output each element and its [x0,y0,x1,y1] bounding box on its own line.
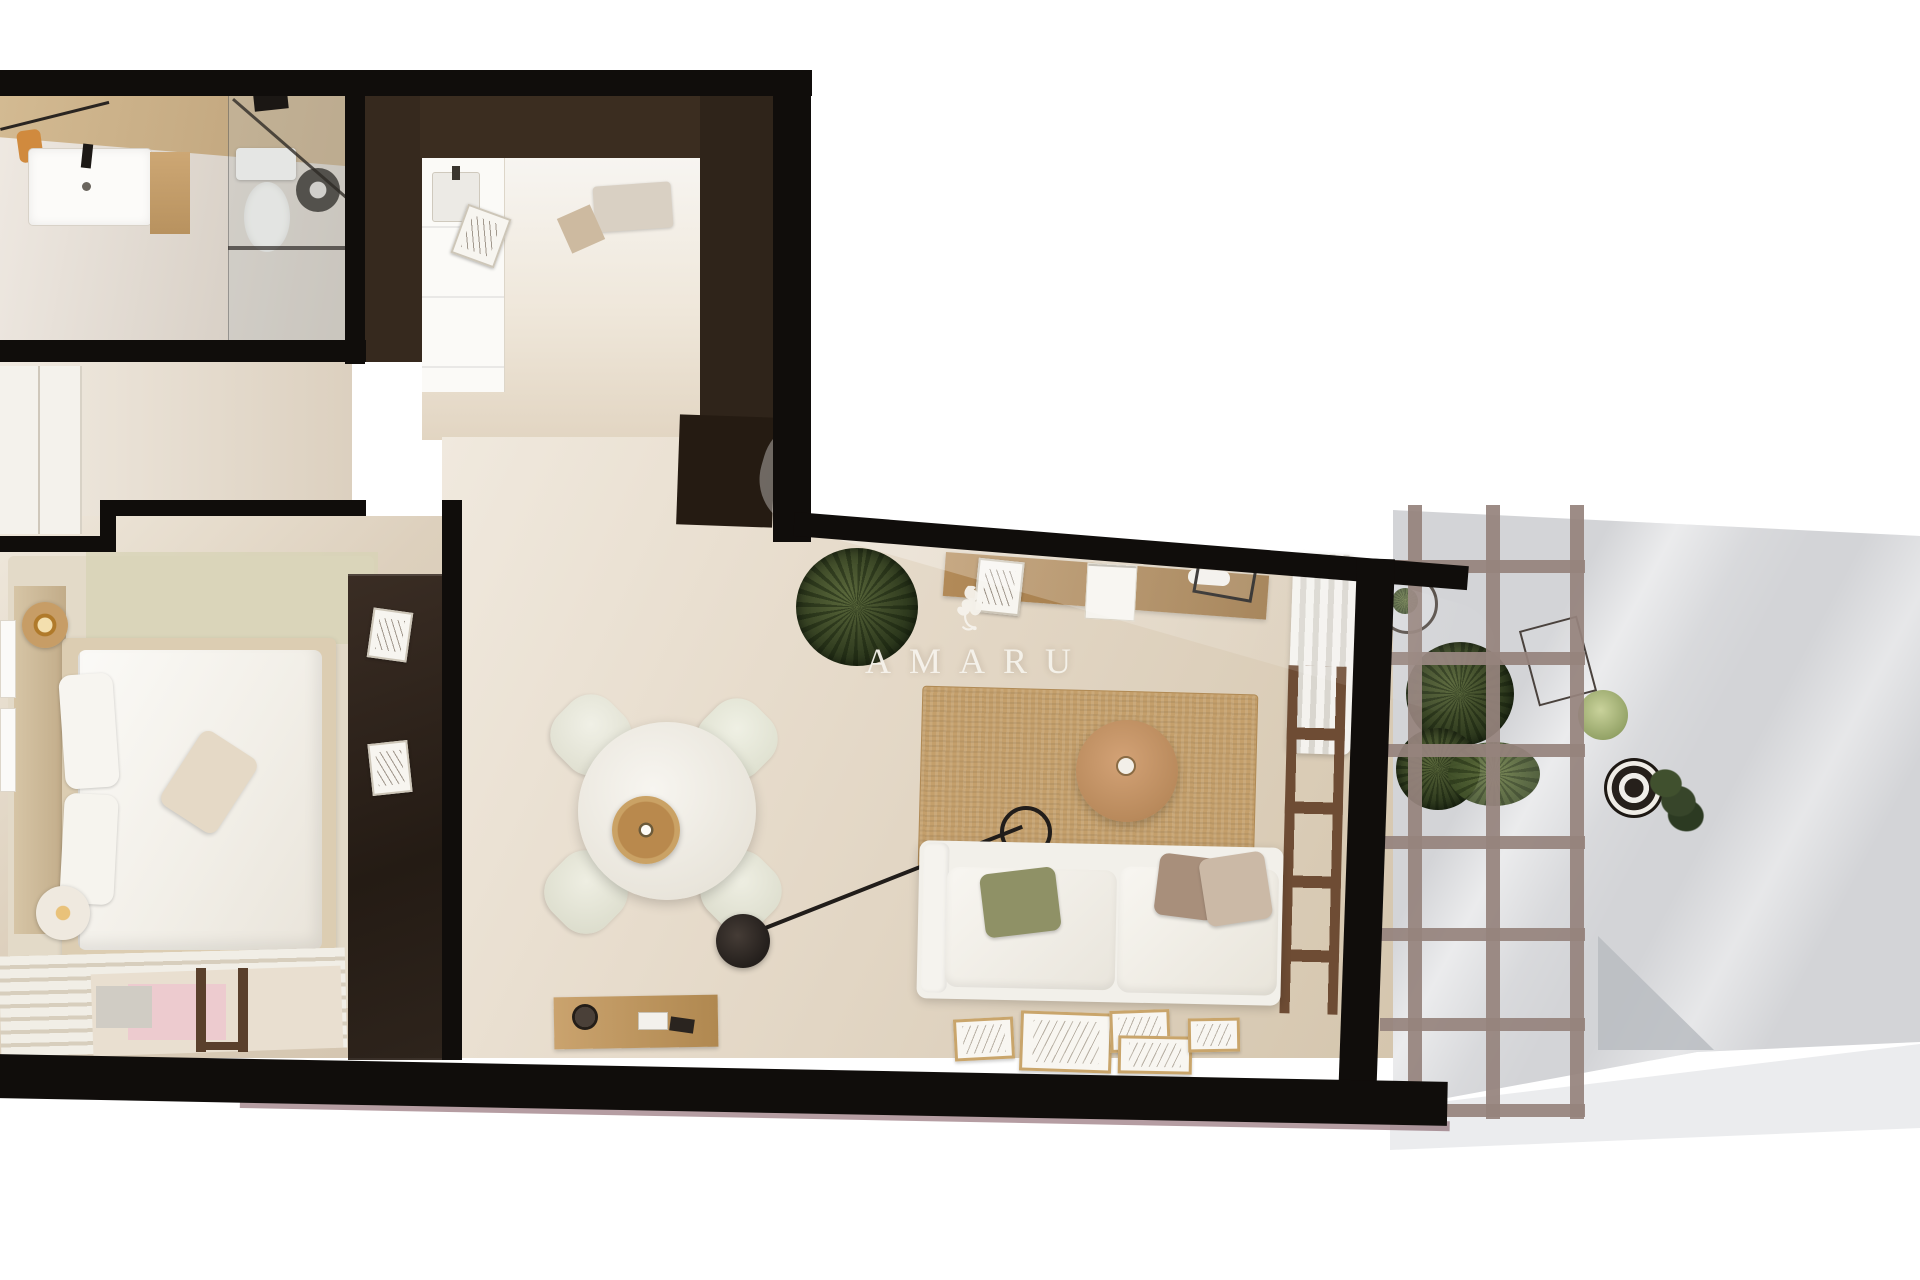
wall-frame [0,620,16,698]
pergola-beam-horizontal [1380,652,1585,665]
wall-bathroom-right [345,70,365,364]
arc-lamp-shade [716,914,770,968]
bedroom-rug-accent [86,552,378,644]
vanity-wood [150,152,190,234]
glass-frame-bar [228,246,346,250]
wall-frame [0,708,16,792]
sideboard-poster [1085,563,1138,622]
succulent-ball [1578,690,1628,740]
hall-closet [0,366,82,534]
kitchen-base-cabinet [676,414,776,527]
console-bowl [572,1004,598,1030]
wall-kitchen-right [773,70,811,542]
kitchen-faucet-icon [452,166,460,180]
floor-plan-render: AMARU [0,0,1920,1280]
cactus-arms [1640,762,1723,845]
pergola-beam-horizontal [1380,928,1585,941]
wood-ladder-rail [238,968,248,1052]
hall-closet-door-seam [38,366,40,534]
wall-bedroom-divider [442,500,462,1060]
countertop-appliance [592,181,673,232]
leaning-frame [1019,1010,1113,1073]
sink-drain [82,182,91,191]
sofa-pillow-green [979,866,1062,939]
leaning-frame [1188,1018,1241,1053]
leaning-frame [1118,1035,1193,1074]
wardrobe-frame [367,607,414,662]
wood-ladder-rung [196,1042,248,1050]
rattan-pendant-icon [612,796,680,864]
wardrobe-frame [367,740,412,796]
pergola-beam-horizontal [1380,744,1585,757]
pergola-beam-horizontal [1380,836,1585,849]
console-books [638,1012,668,1030]
leaning-frame [953,1016,1015,1061]
sofa-pillow-beige [1198,850,1274,927]
coffee-table-decor [1116,756,1136,776]
wall-bedroom-top [100,500,366,516]
pendant-lamp-icon [22,602,68,648]
pendant-lamp-icon [36,886,90,940]
indoor-plant [796,548,918,666]
shower-glass-panel [228,92,347,344]
kitchen-right-cabinets [700,92,775,442]
sofa [916,840,1283,1006]
wall-top [0,70,812,96]
bed-pillow [58,672,120,789]
kitchen-upper-cabinets [420,92,712,158]
pergola-beam-horizontal [1380,1018,1585,1031]
sideboard-art [973,558,1024,617]
wood-ladder-rail [196,968,206,1052]
wall-bedroom-top-left [0,536,114,552]
ladder-shelf [1279,665,1346,1014]
foot-rug-gray-patch [96,986,152,1028]
wall-bathroom-bottom [0,340,366,362]
